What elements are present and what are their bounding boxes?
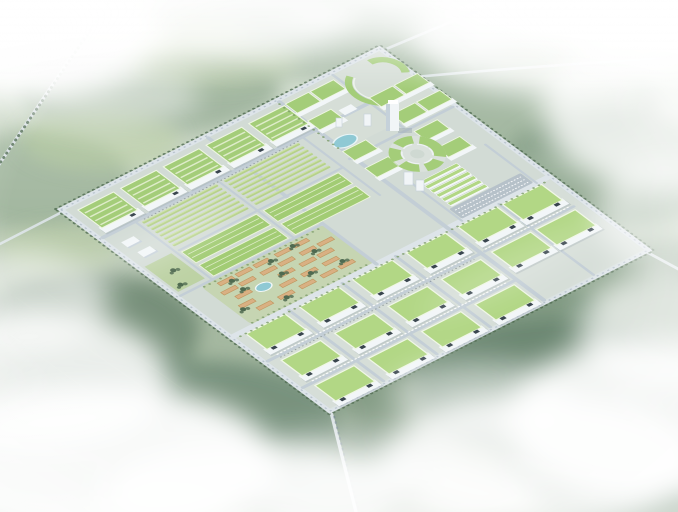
haze-vignette	[0, 0, 678, 512]
aerial-site-rendering	[0, 0, 678, 512]
rendering-canvas	[0, 0, 678, 512]
